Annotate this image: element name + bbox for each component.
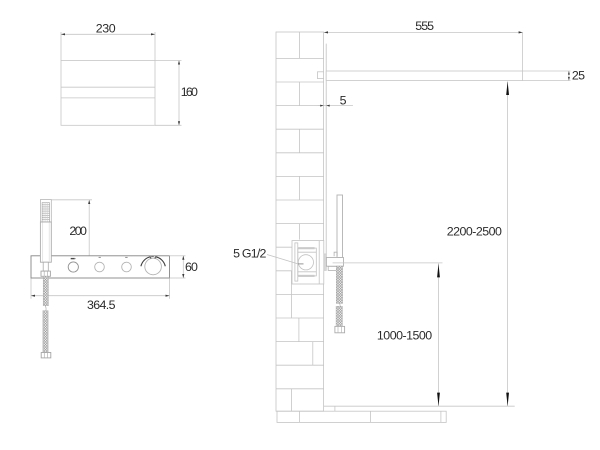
svg-text:555: 555: [415, 19, 434, 33]
svg-text:2200-2500: 2200-2500: [447, 225, 502, 239]
svg-text:5: 5: [340, 94, 347, 108]
svg-text:200: 200: [69, 224, 87, 238]
svg-text:160: 160: [181, 85, 198, 99]
svg-text:1000-1500: 1000-1500: [377, 329, 432, 343]
svg-text:230: 230: [96, 21, 116, 35]
svg-text:5 G1/2: 5 G1/2: [233, 246, 266, 260]
svg-text:25: 25: [572, 68, 585, 82]
svg-text:60: 60: [185, 260, 198, 274]
svg-text:364.5: 364.5: [87, 298, 116, 312]
